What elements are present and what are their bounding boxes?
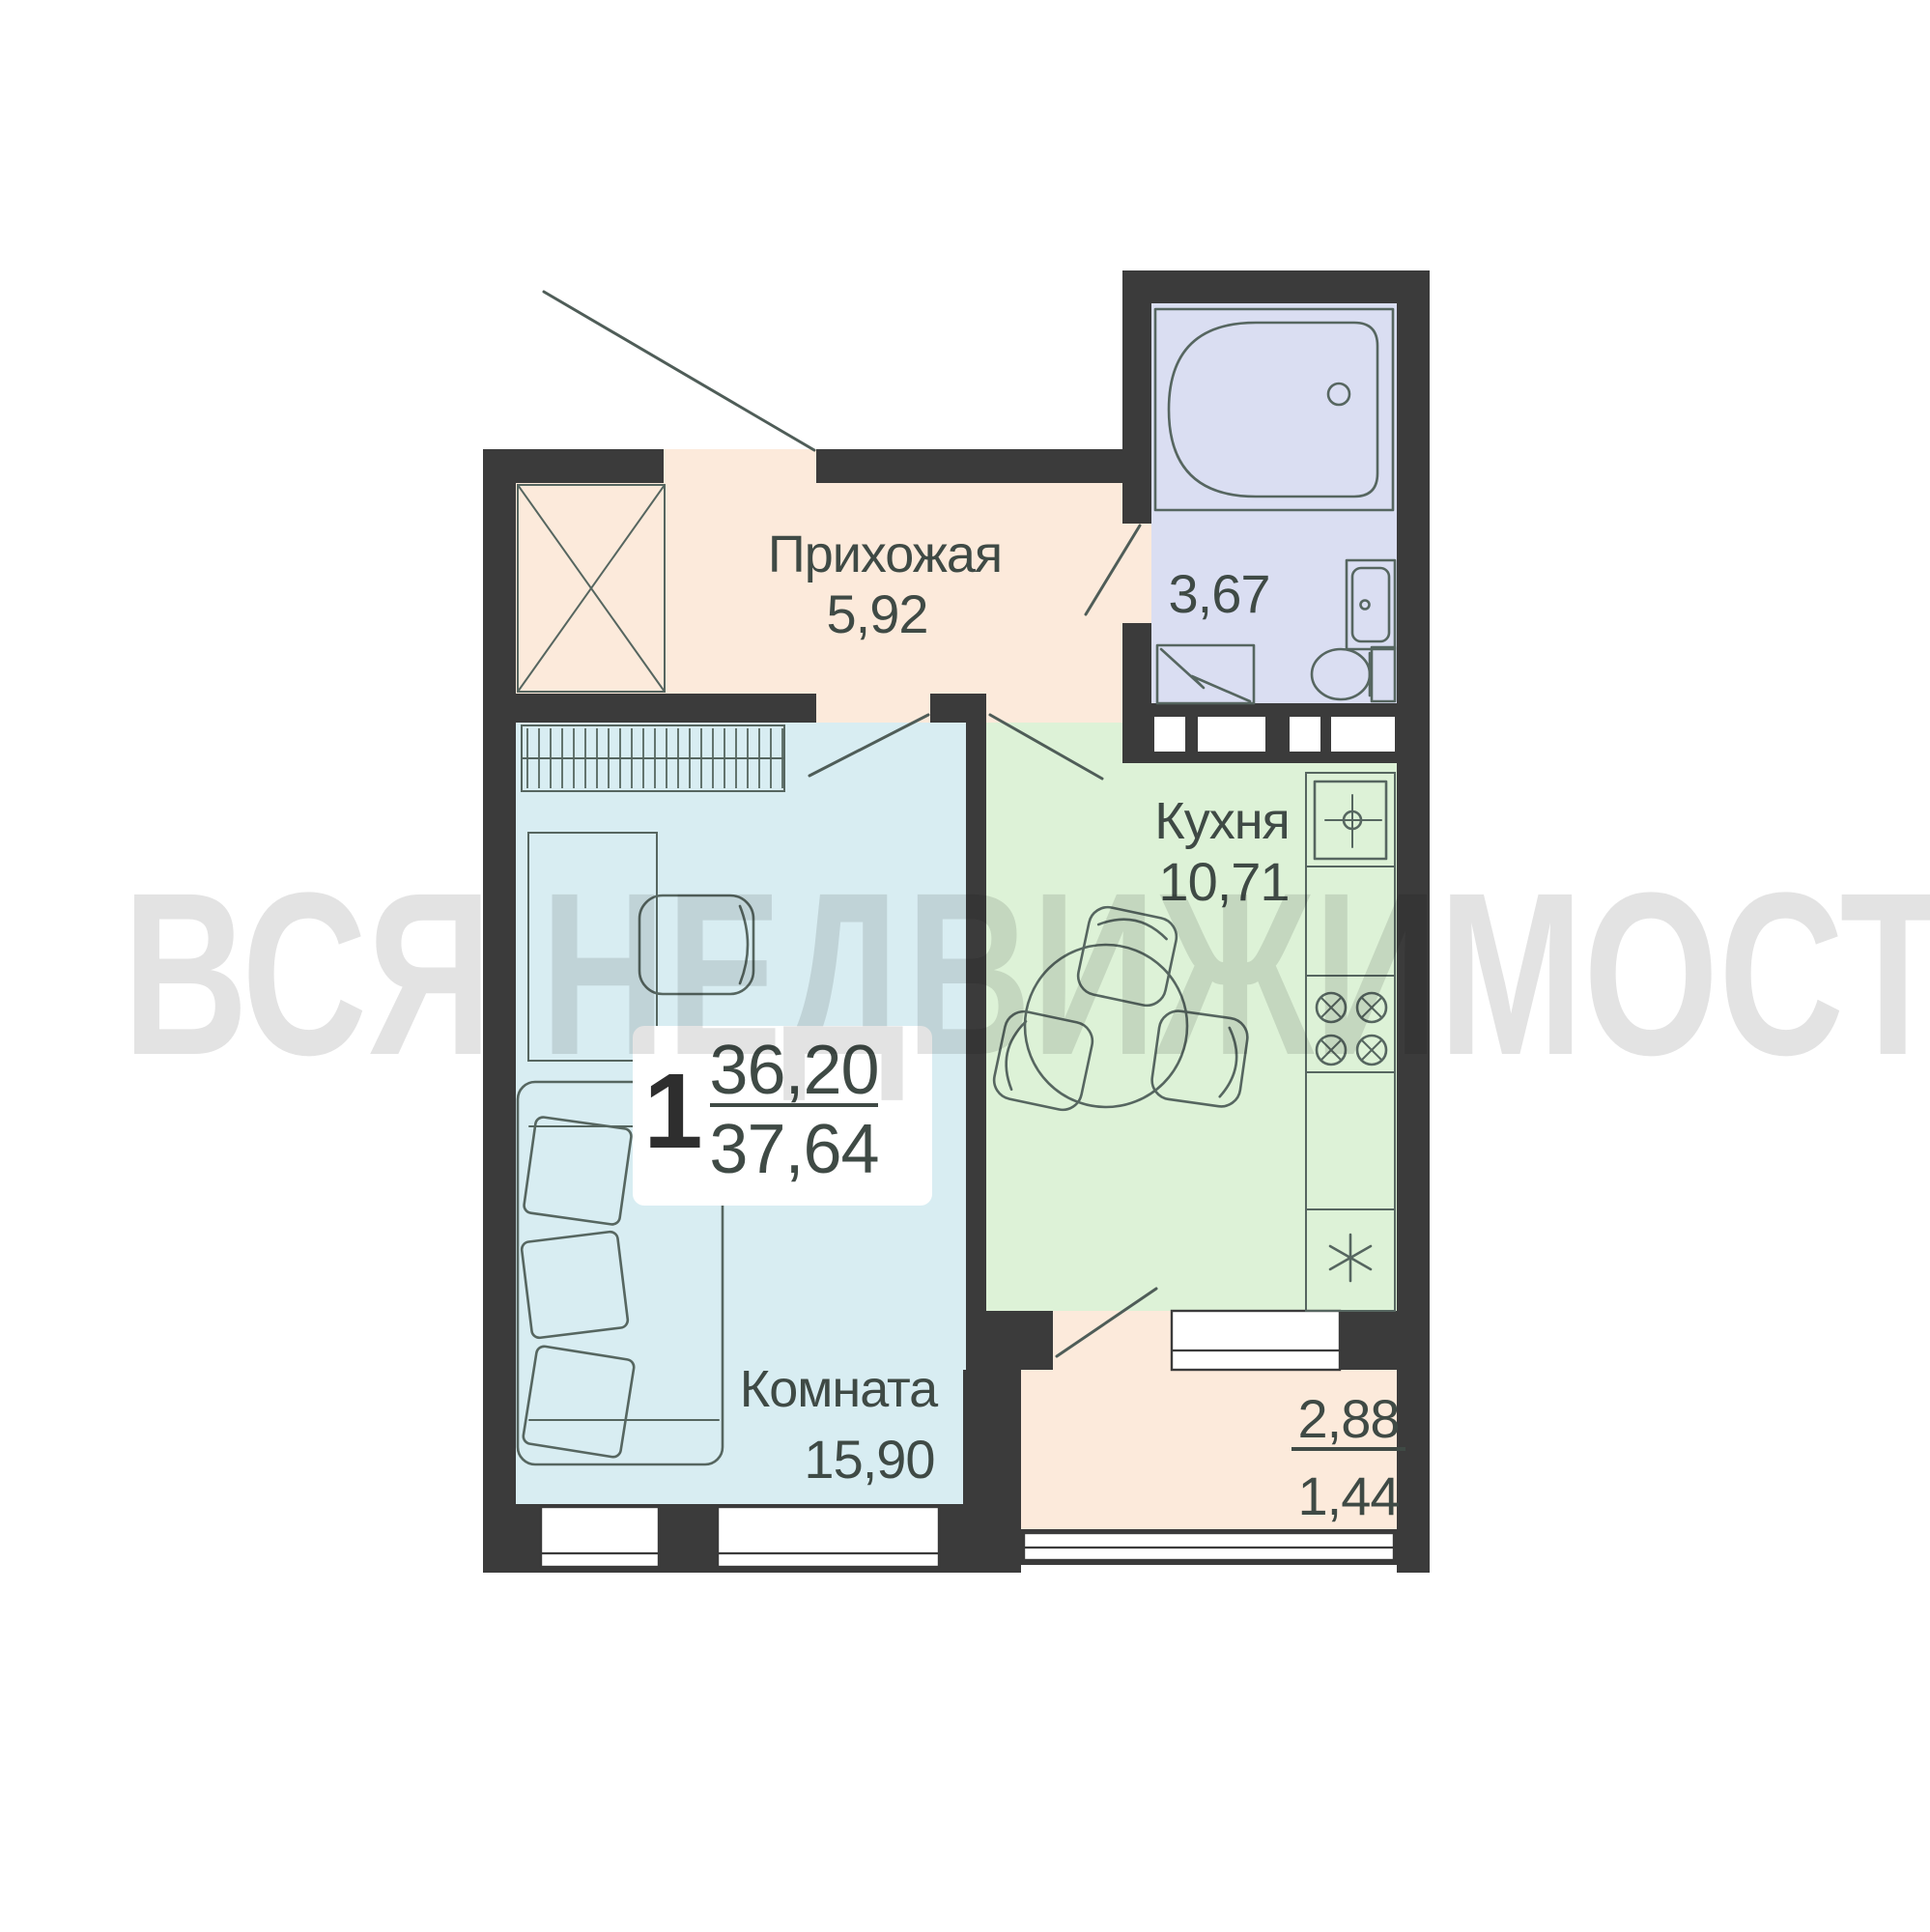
wall-balcony-window-right [1340, 1311, 1397, 1370]
closet-hangers-icon [522, 725, 784, 791]
hallway-floor [516, 483, 1122, 694]
bathroom-door-threshold [1122, 524, 1151, 623]
vent-shaft-icon [1290, 717, 1320, 752]
living-room-label: Комната [740, 1360, 939, 1418]
balcony-glazing [1024, 1533, 1394, 1560]
kitchen-balcony-window [1172, 1311, 1340, 1370]
wall-hallway-bottom [516, 694, 816, 723]
kitchen-label: Кухня [1154, 792, 1290, 850]
balcony-area-total: 2,88 [1298, 1388, 1400, 1449]
watermark-text: ВСЯ НЕДВИЖИМОСТЬ [123, 858, 1930, 1090]
living-window-2 [718, 1507, 939, 1567]
entrance-door-swing [544, 292, 814, 450]
wall-top-right [816, 449, 1122, 483]
wall-junction-block [930, 694, 986, 723]
bathroom-floor [1151, 303, 1397, 703]
living-window-1 [541, 1507, 659, 1567]
vent-shaft-icon [1154, 717, 1185, 752]
bathroom-area: 3,67 [1169, 563, 1270, 624]
wall-bathroom-top [1122, 270, 1430, 303]
wall-bathroom-left-lower [1122, 623, 1151, 715]
wall-balcony-left-block [966, 1311, 1053, 1370]
balcony-area-reduced: 1,44 [1298, 1465, 1400, 1526]
wall-top-left [483, 449, 664, 483]
hallway-area: 5,92 [827, 583, 928, 644]
wall-bathroom-left-upper [1122, 270, 1151, 524]
living-door-threshold [816, 694, 930, 723]
area-lower: 37,64 [709, 1111, 878, 1188]
kitchen-door-threshold [986, 694, 1122, 723]
floor-plan-page: Прихожая 5,92 3,67 [0, 0, 1930, 1932]
wall-balcony-left-thick [963, 1370, 1021, 1504]
hallway-label: Прихожая [768, 526, 1002, 583]
vent-shaft-icon [1198, 717, 1265, 752]
entrance-threshold [664, 449, 816, 483]
vent-shaft-icon [1331, 717, 1395, 752]
living-room-area: 15,90 [804, 1429, 934, 1490]
